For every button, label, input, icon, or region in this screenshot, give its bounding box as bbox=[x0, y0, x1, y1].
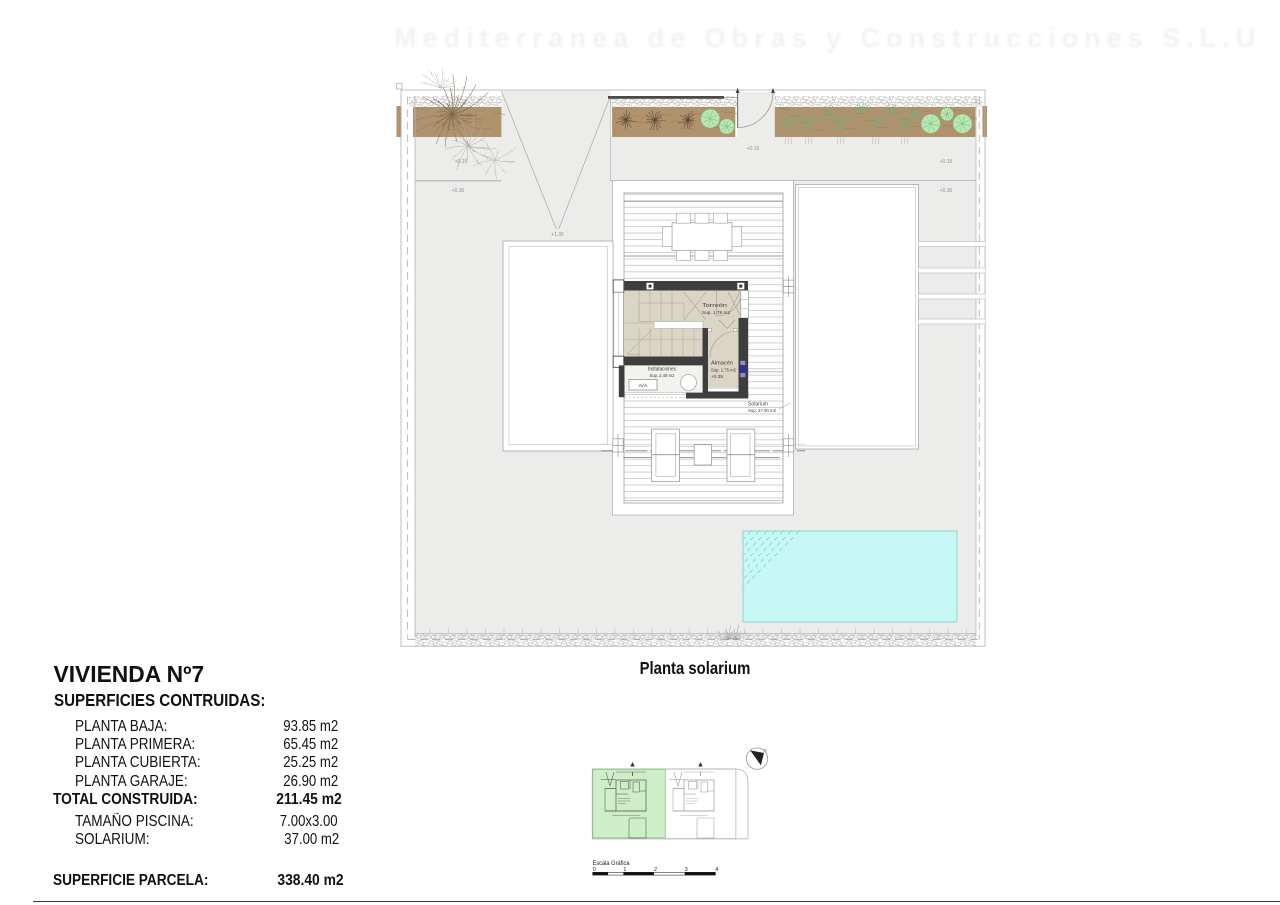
svg-text:+0.30: +0.30 bbox=[452, 188, 465, 194]
svg-text:+0.30: +0.30 bbox=[940, 188, 953, 194]
svg-text:+0.15: +0.15 bbox=[940, 159, 953, 165]
svg-text:Escala Gráfica: Escala Gráfica bbox=[593, 860, 631, 867]
svg-text:Sup. 37.00 m2: Sup. 37.00 m2 bbox=[748, 408, 776, 414]
svg-text:Almacén: Almacén bbox=[711, 361, 733, 367]
svg-text:Torreón: Torreón bbox=[702, 303, 727, 309]
svg-text:+1.35: +1.35 bbox=[551, 232, 564, 238]
svg-text:+0.15: +0.15 bbox=[747, 146, 760, 152]
svg-text:Sup. 1.75 m2: Sup. 1.75 m2 bbox=[711, 368, 736, 374]
svg-text:+0.35: +0.35 bbox=[711, 374, 723, 380]
svg-text:Sup. 1.78 m2: Sup. 1.78 m2 bbox=[702, 310, 730, 316]
svg-text:Sup. 2.49 m2: Sup. 2.49 m2 bbox=[650, 373, 675, 379]
svg-text:A/A: A/A bbox=[639, 383, 649, 388]
svg-text:Instalaciones: Instalaciones bbox=[648, 367, 676, 373]
svg-text:+0.15: +0.15 bbox=[455, 159, 468, 165]
svg-text:4: 4 bbox=[715, 867, 718, 873]
svg-text:Solarium: Solarium bbox=[748, 402, 768, 408]
